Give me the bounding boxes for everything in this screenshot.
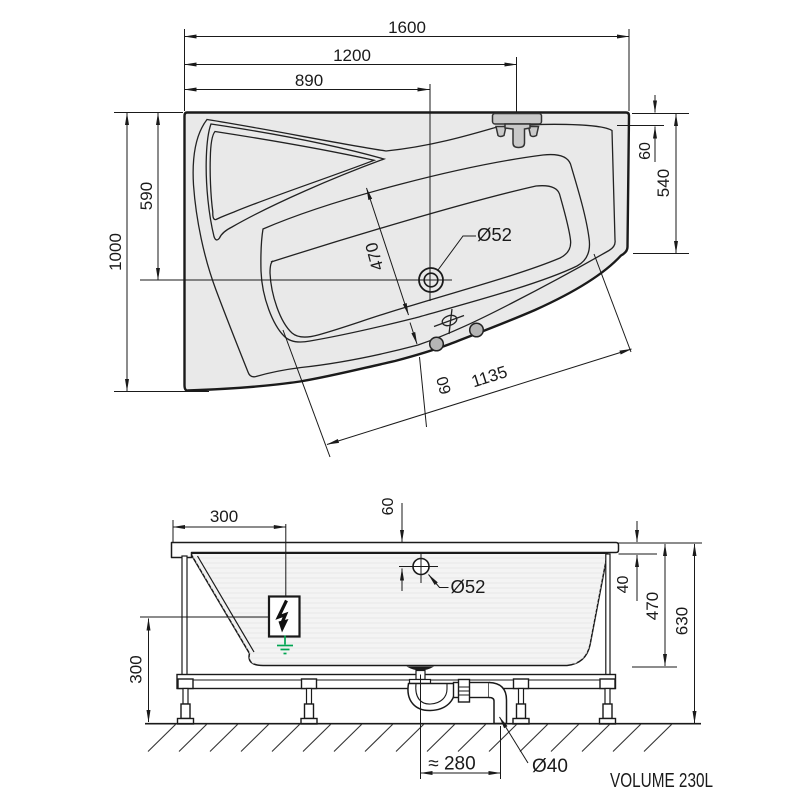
svg-text:VOLUME 230L: VOLUME 230L [610, 769, 713, 792]
svg-text:Ø52: Ø52 [477, 224, 512, 245]
svg-text:Ø40: Ø40 [532, 756, 568, 777]
svg-text:300: 300 [127, 655, 146, 683]
svg-text:540: 540 [654, 169, 673, 197]
svg-text:1000: 1000 [106, 233, 125, 271]
svg-text:890: 890 [295, 71, 323, 90]
svg-text:1200: 1200 [333, 46, 371, 65]
svg-text:1135: 1135 [469, 362, 510, 391]
svg-text:40: 40 [615, 576, 632, 594]
svg-text:630: 630 [673, 607, 692, 635]
svg-text:Ø52: Ø52 [451, 576, 486, 597]
svg-text:1600: 1600 [388, 18, 426, 37]
svg-text:60: 60 [637, 142, 654, 160]
svg-text:60: 60 [434, 374, 455, 396]
svg-text:≈ 280: ≈ 280 [428, 754, 475, 775]
svg-text:470: 470 [643, 592, 662, 620]
svg-text:300: 300 [210, 507, 238, 526]
svg-text:590: 590 [137, 182, 156, 210]
svg-text:60: 60 [380, 498, 397, 516]
